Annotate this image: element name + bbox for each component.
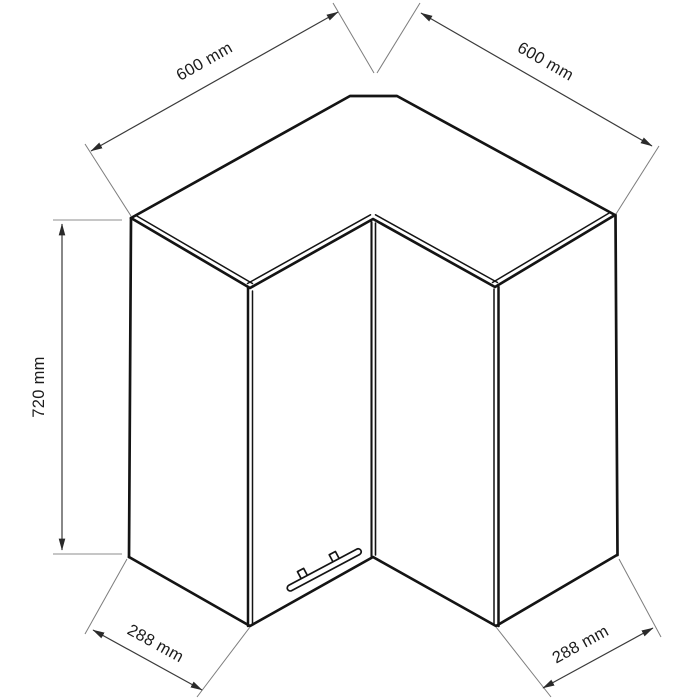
extension-line	[377, 3, 420, 73]
extension-line	[85, 559, 127, 634]
cabinet-vertical-edges	[129, 215, 618, 626]
cabinet-bottom-edges	[129, 555, 617, 626]
dimension-line	[421, 13, 652, 146]
corner-wall-cabinet-drawing: 600 mm 600 mm 720 mm	[0, 0, 700, 700]
dimension-bottom-right-288: 288 mm	[496, 559, 661, 697]
left-outer-edge	[129, 218, 131, 557]
extension-line	[616, 146, 659, 214]
dimension-label-bottom-right: 288 mm	[549, 622, 611, 667]
dimension-height-720: 720 mm	[30, 220, 122, 554]
extension-line	[619, 559, 661, 637]
right-outer-edge	[616, 215, 618, 555]
dimension-label-top-right: 600 mm	[514, 39, 576, 85]
cabinet-outline	[129, 96, 618, 626]
extension-line	[333, 3, 374, 73]
technical-drawing-page: 600 mm 600 mm 720 mm	[0, 0, 700, 700]
extension-line	[85, 144, 131, 216]
dimension-label-bottom-left: 288 mm	[124, 621, 186, 666]
cabinet-top-face	[131, 96, 615, 288]
dimension-label-height: 720 mm	[30, 356, 48, 417]
extension-line	[496, 627, 551, 697]
extension-line	[197, 627, 250, 697]
dimension-label-top-left: 600 mm	[173, 39, 235, 85]
